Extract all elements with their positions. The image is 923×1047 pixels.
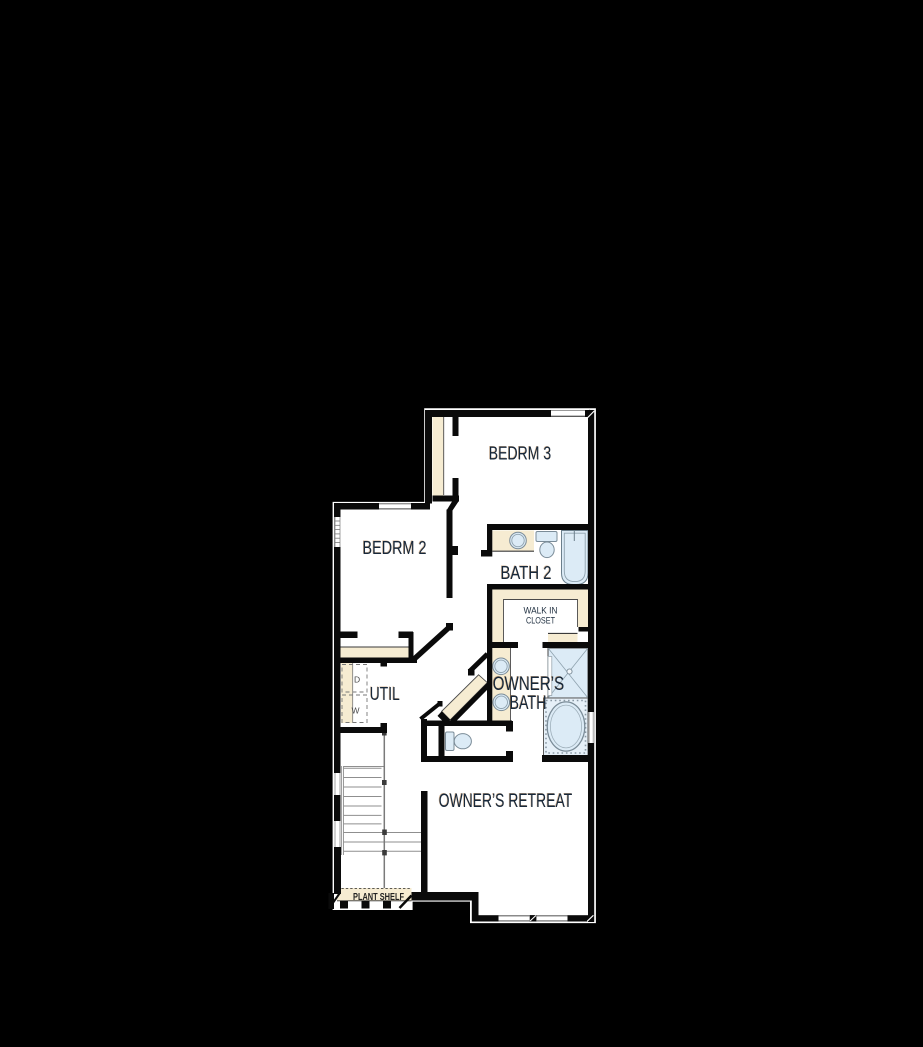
svg-text:WALK IN: WALK IN: [524, 605, 558, 615]
svg-text:OWNER’S: OWNER’S: [493, 674, 565, 695]
svg-text:BEDRM 3: BEDRM 3: [489, 443, 552, 464]
svg-text:BATH 2: BATH 2: [501, 562, 552, 583]
svg-text:W: W: [352, 706, 360, 716]
svg-text:OWNER’S RETREAT: OWNER’S RETREAT: [439, 791, 573, 812]
svg-text:D: D: [354, 674, 360, 684]
svg-text:CLOSET: CLOSET: [526, 616, 556, 626]
svg-text:BATH: BATH: [510, 693, 547, 714]
svg-text:UTIL: UTIL: [370, 683, 400, 704]
svg-text:PLANT SHELF: PLANT SHELF: [353, 892, 404, 903]
svg-text:BEDRM 2: BEDRM 2: [363, 537, 427, 558]
